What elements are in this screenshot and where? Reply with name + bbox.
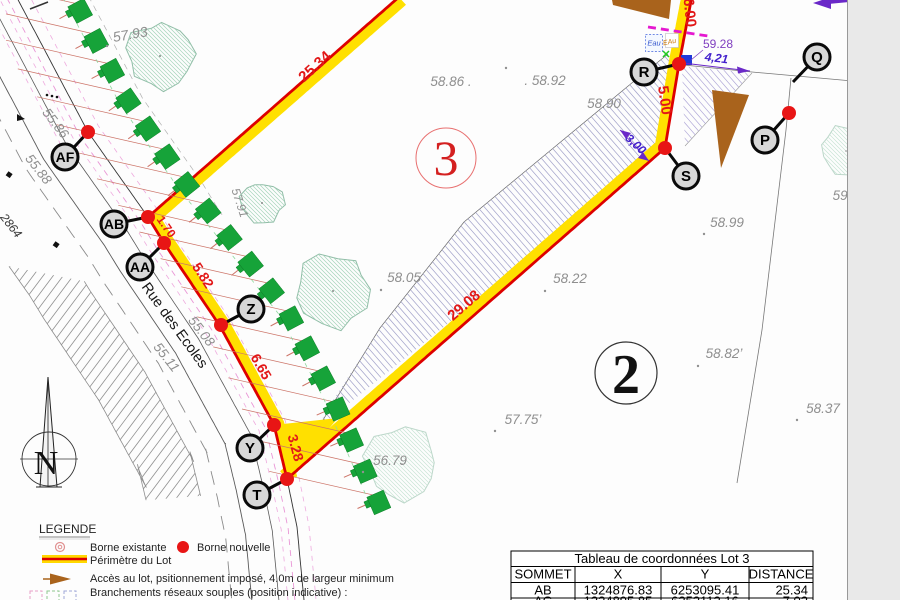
svg-text:2: 2 [612, 344, 640, 406]
svg-text:AA: AA [130, 259, 150, 275]
svg-text:Eau: Eau [647, 39, 661, 48]
svg-text:T: T [252, 487, 261, 504]
svg-text:Q: Q [811, 49, 823, 66]
svg-text:58.86 .: 58.86 . [430, 74, 471, 89]
svg-text:58.22: 58.22 [553, 271, 587, 286]
svg-text:6253112.16: 6253112.16 [671, 594, 739, 600]
svg-text:1324895.85: 1324895.85 [584, 594, 653, 600]
svg-text:58.05: 58.05 [387, 270, 421, 285]
svg-text:58.90: 58.90 [587, 96, 621, 111]
svg-text:Borne existante: Borne existante [90, 542, 166, 554]
svg-text:AF: AF [56, 149, 75, 165]
svg-text:X: X [614, 567, 623, 582]
svg-text:Z: Z [246, 301, 255, 318]
svg-text:N: N [34, 445, 59, 482]
svg-text:Accès au lot, psitionnement im: Accès au lot, psitionnement imposé, 4.0m… [90, 573, 394, 585]
svg-text:. 58.92: . 58.92 [524, 73, 566, 88]
svg-text:P: P [760, 132, 770, 149]
svg-text:AB: AB [104, 216, 124, 232]
svg-text:Y: Y [701, 567, 710, 582]
svg-text:AC: AC [534, 594, 552, 600]
svg-text:6.00: 6.00 [679, 0, 699, 28]
svg-text:LEGENDE: LEGENDE [39, 522, 96, 536]
svg-text:R: R [639, 64, 650, 81]
svg-text:7.02: 7.02 [783, 594, 808, 600]
svg-text:Tableau de coordonnées Lot 3: Tableau de coordonnées Lot 3 [575, 551, 750, 566]
svg-text:Borne nouvelle: Borne nouvelle [197, 542, 270, 554]
svg-text:58.82’: 58.82’ [706, 346, 744, 361]
svg-text:S: S [681, 168, 691, 185]
svg-text:4,21: 4,21 [703, 50, 729, 67]
svg-text:56.79: 56.79 [373, 453, 407, 468]
svg-text:Y: Y [245, 440, 255, 457]
svg-text:DISTANCE: DISTANCE [749, 567, 814, 582]
svg-text:SOMMET: SOMMET [514, 567, 571, 582]
svg-text:59.28: 59.28 [703, 37, 733, 51]
svg-text:Branchements réseaux souples (: Branchements réseaux souples (position i… [90, 587, 347, 599]
svg-text:58.37: 58.37 [806, 401, 840, 416]
svg-text:Périmètre du Lot: Périmètre du Lot [90, 555, 171, 567]
svg-text:58.99: 58.99 [710, 215, 744, 230]
svg-text:3: 3 [434, 130, 459, 186]
svg-text:57.75’: 57.75’ [505, 412, 543, 427]
